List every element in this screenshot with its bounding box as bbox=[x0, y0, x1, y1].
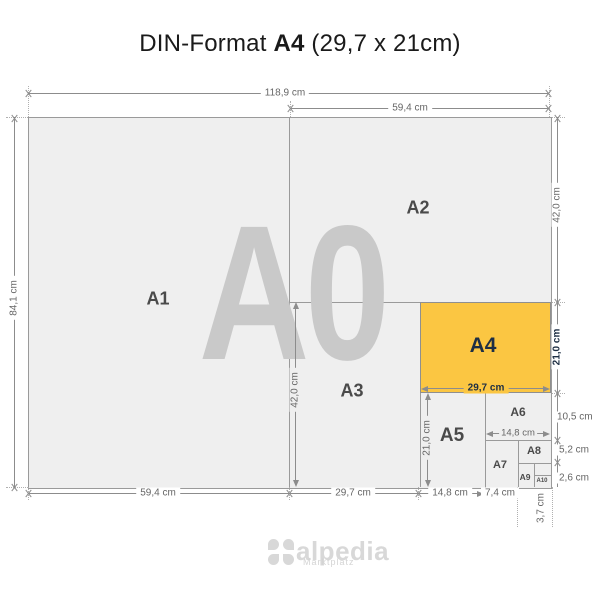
a0-watermark: A0 bbox=[199, 197, 386, 389]
arrowhead bbox=[486, 431, 493, 437]
title-prefix: DIN-Format bbox=[139, 30, 266, 57]
page-title: DIN-Format A4 (29,7 x 21cm) bbox=[0, 30, 600, 58]
tick bbox=[24, 489, 33, 498]
label-a8: A8 bbox=[527, 445, 541, 457]
title-format: A4 bbox=[273, 30, 304, 57]
title-size: (29,7 x 21cm) bbox=[311, 30, 460, 57]
clover-petal bbox=[283, 554, 294, 565]
arrowhead bbox=[293, 302, 299, 309]
label-a3: A3 bbox=[340, 381, 363, 402]
dim-label-right-a2: 42,0 cm bbox=[552, 183, 563, 227]
tick bbox=[24, 89, 33, 98]
tick bbox=[286, 104, 295, 113]
tick bbox=[553, 298, 562, 307]
label-a6: A6 bbox=[510, 405, 525, 419]
dim-label-a5-height: 21,0 cm bbox=[422, 416, 433, 460]
clover-petal bbox=[268, 554, 279, 565]
logo-tagline: Marktplatz bbox=[303, 557, 355, 567]
tick bbox=[10, 483, 19, 492]
arrowhead bbox=[543, 431, 550, 437]
dim-label-top-full: 118,9 cm bbox=[261, 88, 309, 99]
arrowhead bbox=[421, 386, 428, 392]
dim-label-right-a6: 10,5 cm bbox=[555, 412, 595, 423]
label-a1: A1 bbox=[146, 289, 169, 310]
divider-a10-top bbox=[534, 475, 551, 476]
tick bbox=[10, 114, 19, 123]
arrowhead bbox=[543, 386, 550, 392]
tick bbox=[544, 89, 553, 98]
label-a5: A5 bbox=[440, 425, 464, 447]
dim-label-a3-height: 42,0 cm bbox=[290, 368, 301, 412]
tick bbox=[553, 458, 562, 467]
arrowhead bbox=[293, 480, 299, 487]
arrowhead bbox=[425, 393, 431, 400]
dim-label-right-a10: 2,6 cm bbox=[557, 473, 591, 484]
dim-label-a4-width: 29,7 cm bbox=[464, 383, 509, 394]
clover-icon bbox=[268, 539, 294, 565]
dim-label-bottom-a7: 7,4 cm bbox=[481, 488, 519, 499]
label-a10: A10 bbox=[536, 478, 547, 484]
tick bbox=[414, 489, 423, 498]
dim-label-bottom-a5: 14,8 cm bbox=[428, 488, 472, 499]
dim-label-left: 84,1 cm bbox=[9, 276, 20, 320]
label-a9: A9 bbox=[520, 472, 531, 482]
dim-label-bottom-a3: 29,7 cm bbox=[331, 488, 375, 499]
tick bbox=[553, 436, 562, 445]
dim-label-top-half: 59,4 cm bbox=[388, 103, 432, 114]
label-a2: A2 bbox=[406, 198, 429, 219]
clover-petal bbox=[268, 539, 279, 550]
tick bbox=[553, 389, 562, 398]
dim-label-right-a4: 21,0 cm bbox=[552, 325, 563, 370]
arrowhead bbox=[425, 480, 431, 487]
dim-label-bottom-a1: 59,4 cm bbox=[136, 488, 180, 499]
tick bbox=[544, 104, 553, 113]
tick bbox=[553, 114, 562, 123]
clover-petal bbox=[283, 539, 294, 550]
dim-label-a6-width: 14,8 cm bbox=[499, 428, 537, 439]
label-a7: A7 bbox=[493, 459, 507, 471]
extension-line bbox=[552, 487, 553, 527]
tick bbox=[285, 489, 294, 498]
dim-label-right-a8: 5,2 cm bbox=[557, 445, 591, 456]
label-a4: A4 bbox=[470, 334, 497, 358]
dim-label-bottom-a9: 3,7 cm bbox=[536, 489, 547, 527]
